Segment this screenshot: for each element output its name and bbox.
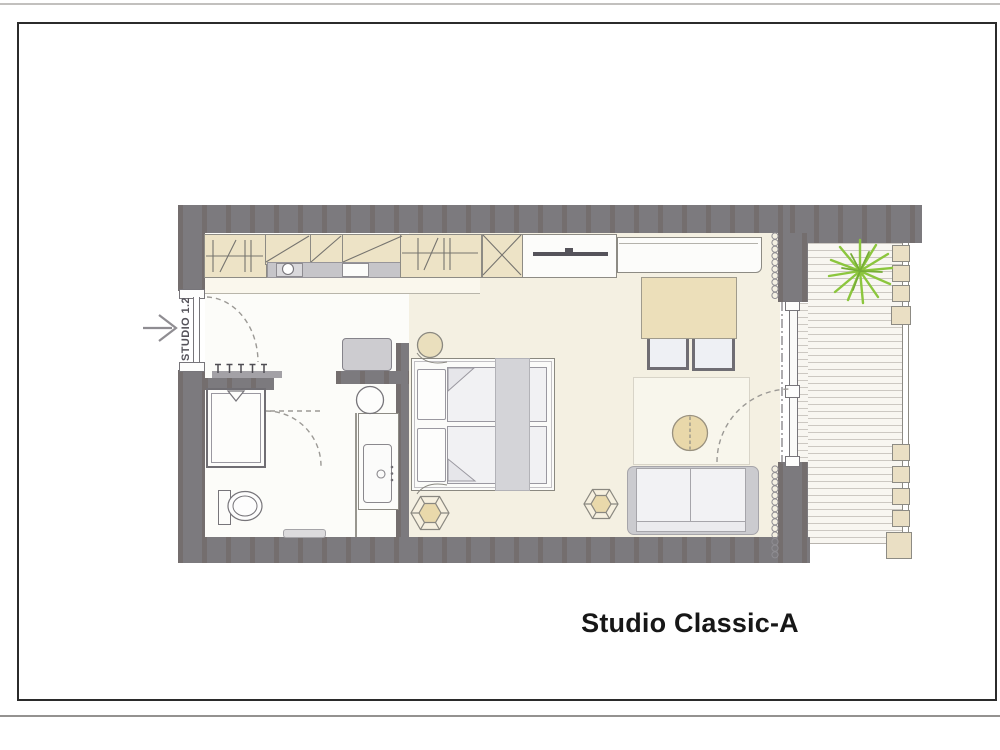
balcony-door-frame-bottom (785, 456, 800, 467)
wall-right-upper (778, 233, 808, 302)
planter-box-2 (892, 265, 910, 282)
scan-artifact-line-bottom (0, 715, 1000, 717)
laptop (342, 338, 392, 371)
desk (336, 371, 409, 384)
dining-chair-left (647, 336, 689, 370)
planter-box-5 (892, 444, 910, 461)
wall-right-lower (778, 462, 808, 563)
washbasin (363, 444, 392, 503)
entry-door-jamb-bottom (179, 362, 205, 372)
sofa-back-cushion (636, 521, 746, 532)
sideboard-front-line (619, 243, 758, 244)
kitchenette-cabinet-1 (265, 234, 312, 265)
wardrobe-hanging-section-2 (400, 234, 482, 278)
planter-box-6 (892, 466, 910, 483)
balcony-door-frame-top (785, 301, 800, 311)
planter-box-8 (892, 510, 910, 527)
scanned-floorplan-page: STUDIO 1.2 Studio Classic-A (0, 0, 1000, 750)
wardrobe-hanging-section (204, 234, 267, 278)
tv-unit (522, 234, 617, 278)
sofa-seat (636, 468, 746, 525)
planter-box-1 (892, 245, 910, 262)
dining-table (641, 277, 737, 339)
planter-box-7 (892, 488, 910, 505)
rug (633, 377, 750, 465)
wall-top (178, 205, 790, 233)
wall-left-upper (178, 233, 205, 291)
shelf-x-unit (482, 234, 524, 278)
dining-chair-right (692, 336, 735, 371)
pillow-1 (417, 369, 446, 420)
bed-runner (495, 358, 530, 491)
plan-title: Studio Classic-A (560, 608, 820, 639)
bathroom-shelf (212, 371, 282, 378)
kitchenette-cabinet-2 (310, 234, 344, 265)
planter-box-9 (886, 532, 912, 559)
balcony-glass-door (789, 303, 798, 462)
toilet-tank (218, 490, 231, 525)
wall-top-balcony (790, 205, 922, 243)
unit-label-wrap: STUDIO 1.2 (153, 296, 219, 362)
wall-bottom (178, 537, 810, 563)
unit-label: STUDIO 1.2 (180, 297, 192, 361)
scan-artifact-line-top (0, 3, 1000, 5)
tv (533, 252, 608, 256)
balcony-door-handle (785, 385, 800, 398)
kitchen-sink-box (276, 263, 303, 277)
planter-box-4 (891, 306, 911, 325)
kitchen-cooktop (342, 263, 369, 277)
shower-tray (211, 393, 261, 463)
sofa-seat-divider (690, 468, 691, 523)
bath-mat (283, 529, 326, 538)
wall-left-lower (178, 370, 205, 563)
planter-box-3 (892, 285, 910, 302)
tv-mount (565, 248, 573, 252)
balcony-deck (808, 243, 903, 544)
kitchenette-cabinet-3 (342, 234, 405, 265)
wall-niche-left (355, 413, 357, 537)
pillow-2 (417, 428, 446, 482)
